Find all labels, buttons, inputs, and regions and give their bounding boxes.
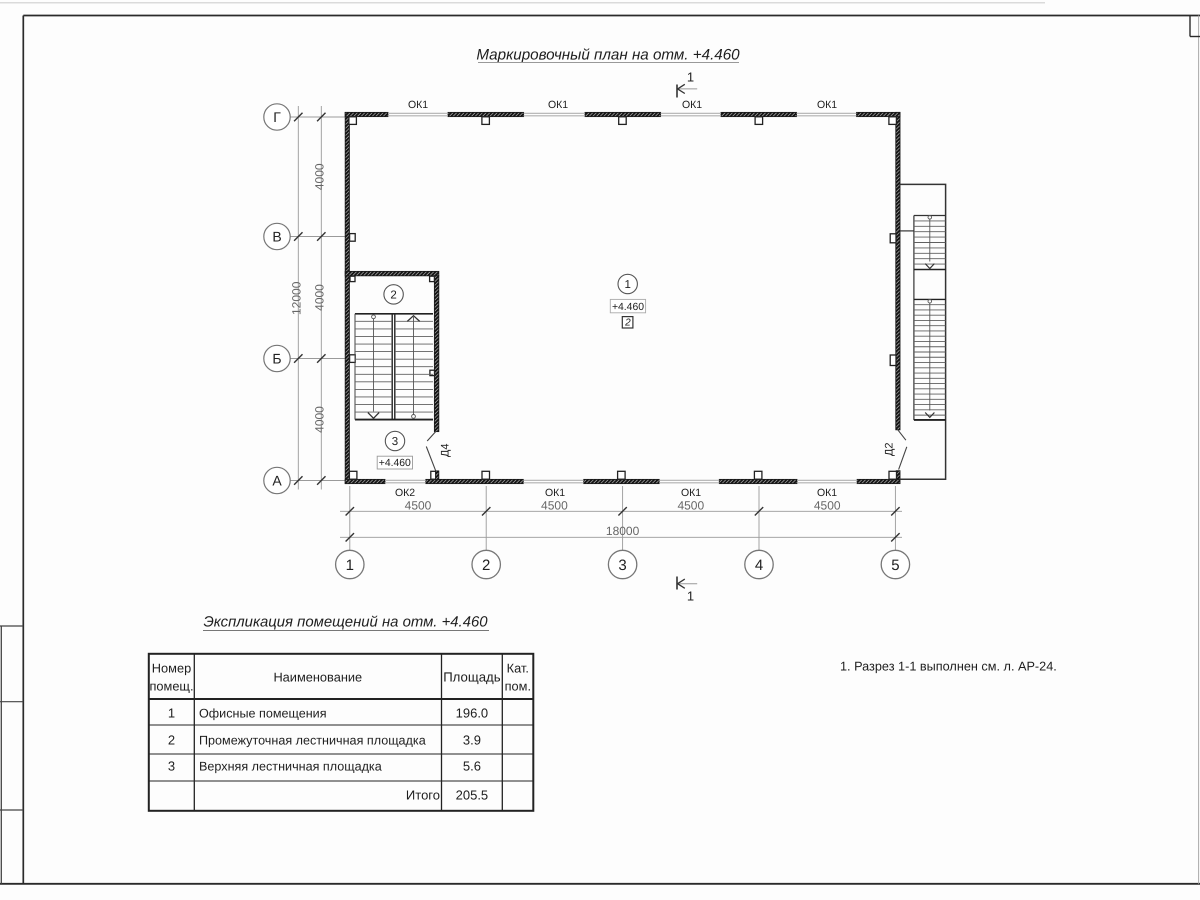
svg-text:помещ.: помещ. bbox=[149, 679, 193, 694]
svg-text:ОК1: ОК1 bbox=[681, 487, 701, 499]
svg-text:Наименование: Наименование bbox=[273, 670, 362, 685]
svg-text:1: 1 bbox=[346, 557, 354, 574]
svg-text:1. Разрез 1-1 выполнен см. л.: 1. Разрез 1-1 выполнен см. л. АР-24. bbox=[840, 660, 1057, 674]
svg-text:5: 5 bbox=[891, 557, 899, 574]
svg-text:3: 3 bbox=[618, 557, 626, 574]
svg-text:Д2: Д2 bbox=[884, 443, 896, 457]
svg-text:18000: 18000 bbox=[606, 524, 640, 538]
svg-text:3: 3 bbox=[168, 759, 175, 774]
svg-text:4000: 4000 bbox=[313, 163, 327, 190]
svg-text:ОК1: ОК1 bbox=[548, 99, 568, 111]
svg-text:ОК1: ОК1 bbox=[817, 487, 837, 499]
svg-text:3: 3 bbox=[392, 436, 398, 448]
svg-text:+4.460: +4.460 bbox=[379, 458, 411, 469]
svg-text:3.9: 3.9 bbox=[463, 732, 481, 747]
svg-text:ОК2: ОК2 bbox=[395, 487, 415, 499]
svg-text:4: 4 bbox=[755, 557, 763, 574]
svg-text:12000: 12000 bbox=[289, 281, 303, 315]
svg-text:Кат.: Кат. bbox=[507, 661, 529, 676]
svg-text:ОК1: ОК1 bbox=[545, 487, 565, 499]
svg-text:1: 1 bbox=[687, 589, 694, 604]
svg-text:Офисные помещения: Офисные помещения bbox=[199, 706, 327, 720]
svg-text:196.0: 196.0 bbox=[456, 705, 489, 720]
svg-text:+4.460: +4.460 bbox=[612, 302, 644, 313]
svg-text:В: В bbox=[272, 229, 281, 245]
svg-text:Итого: Итого bbox=[406, 788, 440, 803]
svg-text:4500: 4500 bbox=[541, 498, 568, 512]
svg-text:4000: 4000 bbox=[313, 284, 327, 311]
svg-text:Б: Б bbox=[272, 351, 281, 367]
svg-text:пом.: пом. bbox=[505, 679, 531, 694]
svg-text:4500: 4500 bbox=[814, 498, 841, 512]
svg-text:Верхняя лестничная площадка: Верхняя лестничная площадка bbox=[199, 760, 382, 774]
svg-text:Д4: Д4 bbox=[439, 444, 451, 458]
svg-text:2: 2 bbox=[168, 732, 175, 747]
svg-text:А: А bbox=[272, 473, 282, 489]
svg-text:Промежуточная лестничная площа: Промежуточная лестничная площадка bbox=[199, 733, 426, 747]
svg-text:ОК1: ОК1 bbox=[408, 99, 428, 111]
svg-text:ОК1: ОК1 bbox=[682, 99, 702, 111]
svg-text:Экспликация помещений на отм.: Экспликация помещений на отм. +4.460 bbox=[203, 615, 488, 631]
svg-text:Г: Г bbox=[273, 109, 281, 125]
svg-text:205.5: 205.5 bbox=[456, 788, 489, 803]
svg-text:4000: 4000 bbox=[313, 406, 327, 433]
svg-text:2: 2 bbox=[390, 290, 396, 302]
svg-text:4500: 4500 bbox=[405, 498, 432, 512]
svg-text:Номер: Номер bbox=[152, 661, 191, 676]
svg-text:ОК1: ОК1 bbox=[817, 99, 837, 111]
svg-text:4500: 4500 bbox=[677, 498, 704, 512]
svg-text:1: 1 bbox=[687, 70, 694, 85]
svg-text:5.6: 5.6 bbox=[463, 759, 481, 774]
svg-text:1: 1 bbox=[624, 279, 630, 291]
svg-text:1: 1 bbox=[168, 705, 175, 720]
svg-text:2: 2 bbox=[482, 557, 490, 574]
svg-text:Площадь: Площадь bbox=[443, 670, 501, 685]
svg-text:Маркировочный план на отм. +4.: Маркировочный план на отм. +4.460 bbox=[476, 47, 740, 64]
svg-text:2: 2 bbox=[624, 318, 631, 329]
